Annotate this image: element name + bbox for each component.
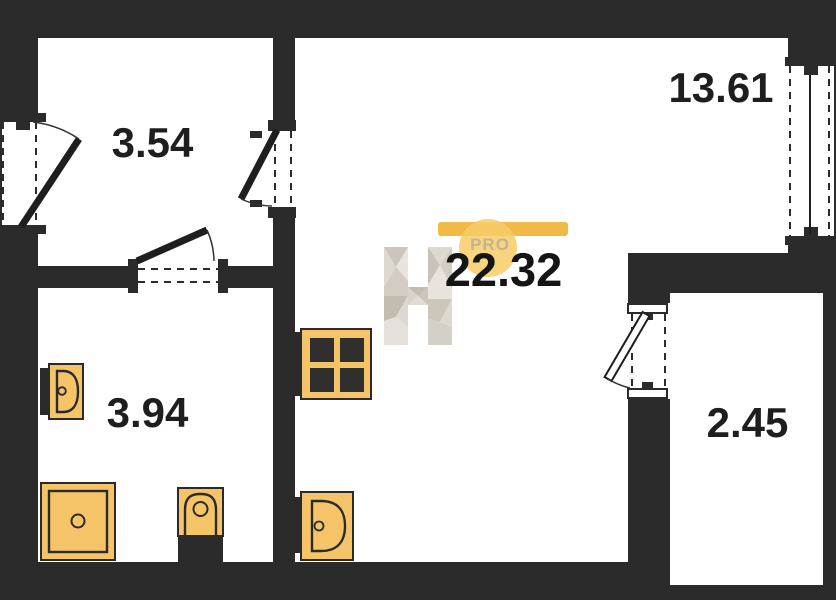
washbasin-icon xyxy=(48,363,84,420)
hall-door-post-bottom xyxy=(268,207,296,218)
hallway-area-label: 3.54 xyxy=(95,121,210,165)
wall-hallway-right-lower xyxy=(273,218,295,562)
stove-4-burner-icon xyxy=(300,328,372,400)
shower-tray-icon xyxy=(40,482,116,561)
kitchen-sink-icon xyxy=(300,491,354,561)
wall-left-upper xyxy=(0,0,38,113)
window-sash-top xyxy=(804,66,818,75)
toilet-bowl-icon xyxy=(177,487,224,537)
hall-door-dash-right xyxy=(290,131,292,207)
entrance-door-lintel-bottom xyxy=(0,225,46,234)
balcony-door-dash-left xyxy=(631,314,633,388)
balcony-area-label: 2.45 xyxy=(690,401,805,445)
living-room-area-label: 13.61 xyxy=(648,66,794,110)
entrance-opening-dash-inner xyxy=(35,122,37,225)
wall-hallway-bathroom-right xyxy=(228,266,273,288)
entrance-door-arc xyxy=(33,122,79,139)
window-sash-bottom xyxy=(804,227,818,236)
balcony-door-arc xyxy=(608,379,630,388)
wall-balcony-door-bottom xyxy=(628,399,670,562)
entrance-opening-dash-outer xyxy=(2,122,4,225)
window-lintel-bottom xyxy=(785,236,836,245)
bath-door-dash-bottom xyxy=(138,281,218,283)
balcony-door-plate-bottom xyxy=(642,382,653,388)
entrance-door-plate xyxy=(16,122,30,130)
window-lintel-top xyxy=(785,57,836,66)
entrance-door-lintel-top xyxy=(0,113,46,122)
balcony-door-frame-bottom xyxy=(627,388,668,399)
balcony-door-frame-top xyxy=(627,303,668,314)
hall-door-plate-top xyxy=(250,131,262,138)
bath-door-arc xyxy=(207,230,214,261)
balcony-door-leaf xyxy=(605,312,650,381)
wall-hallway-bathroom-left xyxy=(38,266,128,288)
wall-balcony-door-top xyxy=(628,293,670,303)
bath-door-dash-top xyxy=(138,268,218,270)
wall-top xyxy=(0,0,788,38)
wall-top-right-corner xyxy=(788,0,836,58)
wall-balcony-bottom xyxy=(670,585,836,600)
hall-door-post-top xyxy=(268,120,296,131)
bathroom-area-label: 3.94 xyxy=(90,391,205,435)
floor-plan: PRO 3.54 13.61 3.94 2.45 22.32 xyxy=(0,0,836,600)
balcony-door-dash-right xyxy=(664,314,666,388)
bath-door-post-left xyxy=(128,259,138,293)
wall-hallway-right-upper xyxy=(273,38,295,120)
wall-bottom xyxy=(0,562,670,600)
total-area-label: 22.32 xyxy=(436,246,571,293)
hall-door-leaf xyxy=(241,130,277,199)
window-dash-right xyxy=(828,66,830,236)
bath-door-post-right xyxy=(218,259,228,293)
wall-left-lower xyxy=(0,234,38,600)
bath-door-leaf xyxy=(137,230,207,261)
wall-balcony-right xyxy=(823,244,836,600)
hall-door-plate-bottom xyxy=(250,200,262,207)
toilet-tank xyxy=(178,535,223,562)
balcony-door-plate-top xyxy=(642,314,653,320)
hall-door-dash-left xyxy=(274,131,276,207)
entrance-door-leaf xyxy=(21,139,79,227)
